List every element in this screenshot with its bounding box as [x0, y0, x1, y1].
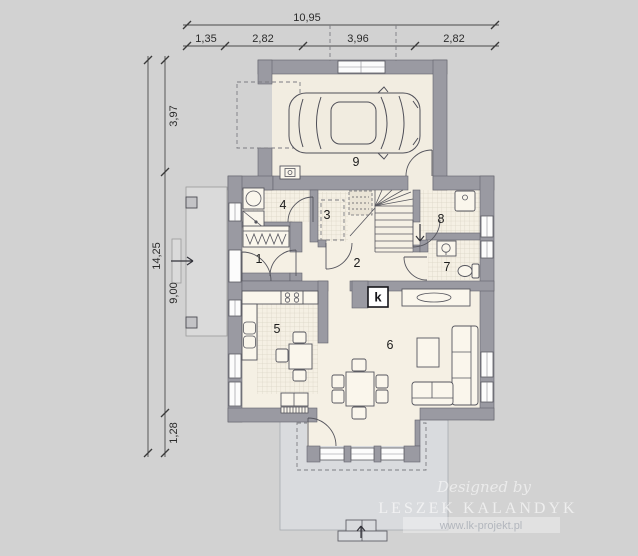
window [229, 354, 241, 378]
window [481, 382, 493, 402]
dim-top-seg-1: 1,35 [195, 33, 216, 45]
dim-top-seg-2: 2,82 [252, 33, 273, 45]
fireplace: k [368, 287, 388, 307]
chair [293, 370, 306, 381]
floor-plan-drawing: k 10,95 1,35 2,82 3,96 2,82 14,25 3,97 [0, 0, 638, 556]
kitchen-counter [242, 304, 257, 360]
window [229, 382, 241, 406]
kitchen-table [289, 344, 312, 369]
room-label-5: 5 [274, 322, 281, 336]
radiator-icon [281, 407, 308, 413]
chair [332, 390, 344, 403]
coffee-table [417, 338, 439, 367]
window [481, 241, 493, 258]
sideboard-icon [402, 289, 470, 306]
room-label-7: 7 [444, 260, 451, 274]
boiler-icon [455, 191, 475, 211]
room-label-1: 1 [256, 252, 263, 266]
room-label-4: 4 [280, 198, 287, 212]
dining-table [346, 372, 374, 406]
window [481, 216, 493, 237]
dim-top-seg-3: 3,96 [347, 33, 368, 45]
window [320, 448, 344, 460]
bathroom-fixtures [243, 188, 264, 228]
stove-icon [281, 291, 303, 304]
dim-top-total: 10,95 [293, 12, 321, 24]
porch-post [186, 197, 197, 208]
room-label-3: 3 [324, 208, 331, 222]
entrance-door-opening [229, 250, 241, 282]
porch-post [186, 317, 197, 328]
wardrobe-icon [243, 226, 289, 247]
watermark-studio-name: LESZEK KALANDYK [378, 500, 577, 517]
entrance-porch [171, 187, 227, 336]
fireplace-k-label: k [374, 290, 382, 305]
dim-left-seg-1: 3,97 [168, 105, 180, 126]
floor-drain-icon [280, 166, 300, 179]
window [229, 300, 241, 316]
watermark-website: www.lk-projekt.pl [439, 520, 523, 532]
dim-left-total: 14,25 [151, 242, 163, 270]
dim-left-seg-3: 1,28 [168, 422, 180, 443]
floor-plan-page: k 10,95 1,35 2,82 3,96 2,82 14,25 3,97 [0, 0, 638, 556]
chair [376, 375, 388, 388]
room-label-8: 8 [438, 212, 445, 226]
chair [352, 407, 366, 419]
chair [276, 349, 288, 362]
chair [352, 359, 366, 371]
room-label-9: 9 [353, 155, 360, 169]
window [351, 448, 374, 460]
fireplace-block [352, 281, 368, 308]
chair [376, 390, 388, 403]
dim-left-seg-2: 9,00 [168, 282, 180, 303]
kitchen-counter [242, 291, 318, 304]
window [229, 203, 241, 221]
kitchen-counter [281, 393, 308, 406]
window [338, 61, 385, 73]
wc-sink-icon [437, 241, 456, 256]
room-label-6: 6 [387, 338, 394, 352]
dim-top-seg-4: 2,82 [443, 33, 464, 45]
room-label-2: 2 [354, 256, 361, 270]
window [381, 448, 404, 460]
watermark-designed-by: Designed by [436, 478, 532, 496]
window [481, 352, 493, 377]
car-icon [289, 87, 420, 159]
chair [332, 375, 344, 388]
toilet-icon [458, 264, 479, 278]
chair [293, 332, 306, 343]
